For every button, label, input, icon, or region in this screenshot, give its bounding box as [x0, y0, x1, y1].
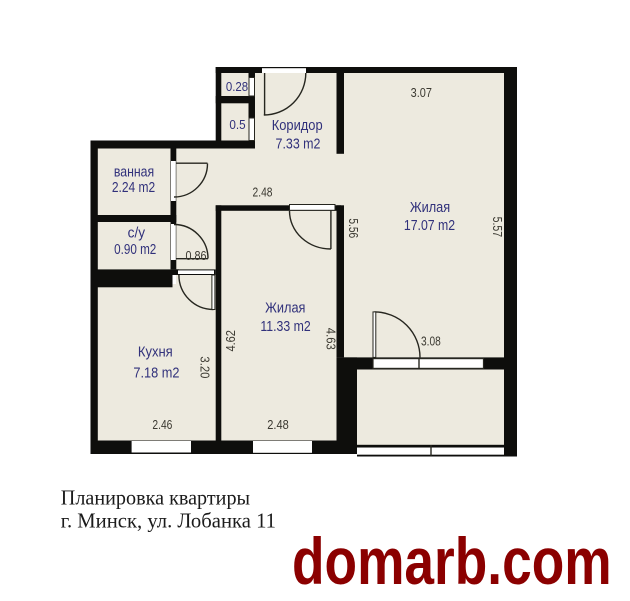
svg-text:7.18 m2: 7.18 m2 [133, 363, 179, 380]
svg-text:7.33 m2: 7.33 m2 [276, 135, 321, 151]
svg-text:2.46: 2.46 [152, 418, 172, 432]
svg-text:2.48: 2.48 [253, 186, 273, 200]
svg-text:17.07 m2: 17.07 m2 [404, 217, 455, 233]
svg-text:Коридор: Коридор [272, 116, 323, 133]
svg-text:2.48: 2.48 [267, 417, 289, 432]
svg-text:11.33 m2: 11.33 m2 [260, 318, 310, 334]
svg-text:Планировка квартиры: Планировка квартиры [61, 487, 250, 509]
svg-text:г. Минск, ул. Лобанка 11: г. Минск, ул. Лобанка 11 [61, 508, 276, 532]
svg-text:ванная: ванная [114, 163, 154, 179]
svg-text:Жилая: Жилая [265, 298, 305, 315]
svg-text:3.08: 3.08 [421, 334, 441, 348]
svg-text:5.56: 5.56 [346, 218, 360, 238]
svg-text:3.20: 3.20 [197, 356, 212, 378]
svg-text:0.86: 0.86 [186, 248, 207, 263]
svg-text:3.07: 3.07 [411, 85, 433, 100]
svg-text:5.57: 5.57 [490, 217, 505, 238]
svg-text:Кухня: Кухня [138, 343, 173, 360]
svg-text:4.62: 4.62 [223, 330, 238, 352]
svg-text:Жилая: Жилая [410, 198, 450, 215]
svg-text:с/у: с/у [128, 225, 146, 242]
svg-text:4.63: 4.63 [323, 328, 338, 350]
svg-text:0.28: 0.28 [226, 79, 248, 94]
svg-text:2.24 m2: 2.24 m2 [112, 179, 155, 196]
svg-text:domarb.com: domarb.com [292, 525, 612, 599]
svg-text:0.90 m2: 0.90 m2 [114, 241, 156, 258]
svg-text:0.5: 0.5 [229, 117, 245, 132]
